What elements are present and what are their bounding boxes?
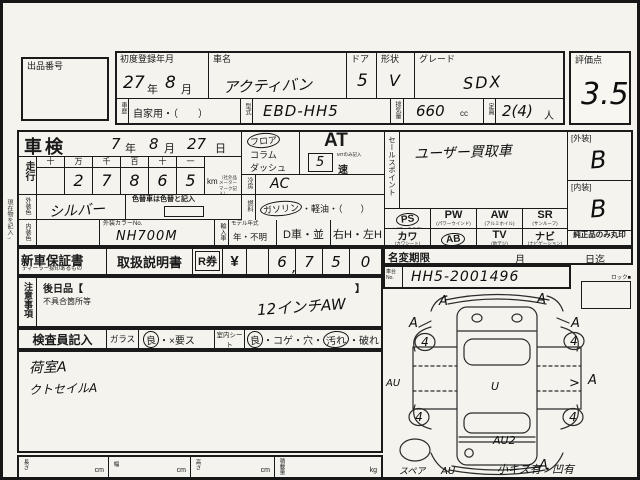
dimensions-row: 長さ cm 幅 cm 高さ cm 積載量 kg (17, 455, 383, 479)
manual-cell: 取扱説明書 (107, 249, 193, 274)
fuel-gas-selected: ガソリン (259, 199, 302, 218)
interior-color-label: 内装色 (24, 223, 30, 241)
fuel-label-cell: 燃料 (242, 195, 256, 220)
sales-value: ユーザー買取車 (414, 140, 512, 163)
equip-tv-cell: TV (地デジ) (477, 229, 523, 249)
vehicle-header-table: 初度登録年月 27 年 8 月 車名 アクティバン ドア 5 形状 V グレード… (115, 51, 565, 125)
price-cell-0 (247, 249, 269, 274)
equip-pw-name: (パワーウインド) (431, 221, 476, 227)
margin-note: 現在物を記入→ (6, 199, 12, 241)
history-label-cell: 車歴 (117, 99, 129, 123)
width-cell: 幅 cm (109, 457, 191, 477)
exterior-grade-label: [外装] (571, 134, 591, 143)
model-label-cell: 型式 (241, 99, 253, 123)
diagram-bottom-note: 小キズ有・凹有 (497, 463, 576, 476)
caution-box: 注意事項 後日品【 】 不具合箇所等 12インチAW (17, 276, 383, 328)
speed-suffix: 速 (338, 161, 348, 174)
shift-options-cell: フロア コラム ダッシュ (242, 132, 300, 174)
lot-number-label: 出品番号 (27, 62, 63, 72)
name-change-row: 名変期限 月 日迄 (383, 247, 633, 265)
vehicle-damage-diagram: 4 4 4 4 A A A A AU A > U AU2 AU A スペア 小キ… (385, 287, 633, 477)
mileage-note: （社外品メーターマーク記入） (219, 175, 241, 194)
fender-right-mark: A (570, 316, 580, 331)
fender-right-tick (557, 318, 569, 323)
history-label: 車歴 (120, 102, 126, 114)
digit-header: 千 (93, 157, 120, 168)
shaken-year-suffix: 年 (125, 140, 136, 156)
length-unit: cm (95, 467, 104, 475)
import-label-cell: 輸入車 (215, 220, 229, 247)
ac-label-cell: 冷房 (242, 175, 256, 194)
d-car-cell: D車・並 (277, 220, 331, 247)
model-year-value: 年・不明 (233, 231, 267, 243)
inspector-note-1: 荷室A (29, 356, 67, 377)
month-suffix: 月 (181, 81, 192, 97)
height-unit: cm (261, 467, 270, 475)
seat-good-selected: 良 (246, 330, 263, 348)
sales-label-cell: セールスポイント (385, 132, 400, 209)
grade-cell: グレード SDX (415, 53, 563, 99)
at-value: AT (324, 132, 348, 152)
equip-kawa-cell: カワ (カワシート) (385, 229, 431, 249)
color-change-cell: 色替車は色替と記入 (125, 195, 242, 219)
mileage-col-3: 百 8 (121, 157, 149, 194)
mileage-col-4: 十 6 (149, 157, 177, 194)
name-change-day: 日迄 (585, 251, 605, 266)
color-model-row: 内装色 外装カラーNo. NH700M 輸入車 モデル年式 年・不明 D車・並 … (19, 220, 385, 247)
digit-header: 十 (149, 157, 176, 168)
wheel-fl-mark: 4 (421, 335, 429, 349)
warranty-cell: 新車保証書 ディーラー捺印あるもの (19, 249, 107, 274)
fuel-row: 燃料 ガソリン・軽油・（ ） (242, 195, 385, 220)
ac-value: AC (270, 176, 289, 192)
equip-aw-code: AW (477, 209, 522, 221)
color-no-cell: 外装カラーNo. NH700M (100, 220, 215, 247)
door-cell: ドア 5 (347, 53, 377, 99)
spare-label: スペア (399, 467, 426, 477)
door-label: ドア (351, 55, 369, 65)
rear-left-mark: AU (440, 466, 456, 477)
history-value: 自家用・（ ） (133, 105, 208, 120)
ac-label: 冷房 (246, 177, 252, 189)
digit-header: 一 (177, 157, 204, 168)
equip-sr-cell: SR (サンルーフ) (523, 209, 568, 229)
later-parts-close: 】 (355, 280, 365, 295)
digit-value: 8 (121, 168, 148, 193)
caution-label: 注意事項 (23, 282, 32, 318)
exterior-color-row: 外装色 シルバー 色替車は色替と記入 (19, 195, 242, 220)
capacity-cell: 2(4) 人 (496, 99, 563, 123)
warranty-sub: ディーラー捺印あるもの (22, 266, 82, 272)
chassis-value: HH5-2001496 (411, 269, 519, 285)
caution-note-value: 12インチAW (256, 293, 346, 320)
chassis-row: 車台No. HH5-2001496 (383, 265, 571, 289)
mileage-col-2: 千 7 (93, 157, 121, 194)
r-ticket-label: R券 (195, 251, 220, 271)
shaken-year: 7 (111, 135, 121, 153)
grade-value: SDX (463, 72, 503, 93)
digit-value: 5 (177, 168, 204, 193)
sales-point-label: セールスポイント (388, 136, 396, 196)
main-band: 車検 7 年 8 月 27 日 走行 十 万 2 千 7 (17, 130, 633, 247)
equip-ps-code: PS (395, 212, 419, 227)
equip-ab-code: AB (441, 232, 466, 247)
equip-ps-cell: PS (パワーステア) (385, 209, 431, 229)
sales-area: ユーザー買取車 (400, 132, 568, 209)
fuel-label: 燃料 (246, 200, 252, 212)
wheel-fr-mark: 4 (570, 334, 578, 348)
left-mirror (472, 314, 482, 322)
shaken-cell: 車検 7 年 8 月 27 日 (19, 132, 242, 157)
later-parts-label: 後日品【 (43, 280, 83, 295)
chassis-label: 車台No. (386, 269, 402, 281)
floor-center-mark: U (491, 380, 499, 393)
mileage-label-cell: 走行 (19, 157, 37, 194)
equip-tv-code: TV (477, 229, 522, 241)
first-registration-cell: 初度登録年月 27 年 8 月 (117, 53, 209, 99)
color-no-value: NH700M (116, 229, 178, 244)
car-name-cell: 車名 アクティバン (209, 53, 347, 99)
payload-label: 積載量 (278, 458, 284, 475)
equip-navi-code: ナビ (523, 229, 567, 241)
length-cell: 長さ cm (19, 457, 109, 477)
history-value-cell: 自家用・（ ） (129, 99, 241, 123)
spare-tire-circle (400, 439, 430, 461)
left-side-panel (413, 347, 457, 409)
name-change-label: 名変期限 (388, 250, 430, 265)
model-label: 型式 (244, 103, 250, 115)
interior-color-value-cell (37, 220, 100, 247)
shift-floor-selected: フロア (246, 132, 280, 149)
equip-aw-name: (アルミホイル) (477, 221, 522, 227)
mileage-unit: km (207, 177, 218, 186)
digit-header: 十 (37, 157, 64, 168)
car-name-label: 車名 (213, 55, 231, 65)
width-label: 幅 (112, 461, 118, 467)
ac-row: 冷房 AC (242, 175, 385, 195)
equip-ab-cell: AB (エアバッグ) (431, 229, 477, 249)
first-registration-month: 8 (165, 73, 176, 93)
price-comma: , (292, 260, 296, 276)
fender-left-tick (419, 321, 431, 327)
length-label: 長さ (22, 459, 28, 470)
model-year-label: モデル年式 (231, 221, 259, 227)
first-registration-year: 27 (123, 73, 145, 93)
glass-options: 良・×要ス (139, 330, 215, 348)
shape-label: 形状 (381, 55, 399, 65)
capacity-label-cell: 定員 (484, 99, 496, 123)
rear-small-circle-annotation (465, 449, 473, 457)
right-mirror (512, 314, 522, 322)
mileage-label: 走行 (23, 161, 33, 181)
handle-cell: 右H・左H (331, 220, 385, 247)
exterior-grade-value: B (589, 145, 607, 174)
car-name-value: アクティバン (223, 73, 313, 97)
front-right-mark: A (536, 292, 546, 307)
glass-good-selected: 良 (142, 330, 159, 348)
seat-options: 良・コゲ・穴・汚れ・破れ (245, 330, 381, 348)
seat-options-end: ・破れ (349, 336, 379, 347)
equip-aw-cell: AW (アルミホイル) (477, 209, 523, 229)
digit-value: 7 (93, 168, 120, 193)
shaken-month: 8 (149, 135, 159, 153)
inspector-row: 検査員記入 ガラス 良・×要ス 室内シート 良・コゲ・穴・汚れ・破れ (17, 328, 383, 350)
displacement-unit: cc (460, 109, 468, 118)
import-label: 輸入車 (219, 223, 225, 241)
interior-color-label-cell: 内装色 (19, 220, 37, 247)
front-right-swoosh (547, 296, 563, 311)
equip-pw-code: PW (431, 209, 476, 221)
shaken-day: 27 (187, 135, 206, 153)
inspector-label: 検査員記入 (19, 330, 107, 348)
yen-symbol: ¥ (223, 249, 247, 274)
windshield (464, 339, 530, 365)
color-change-note: 色替車は色替と記入 (132, 196, 195, 204)
price-cell-2: 7 (296, 249, 323, 274)
at-cell: AT 5 MTのみ記入 速 (300, 132, 384, 174)
score-box: 評価点 3.5 (569, 51, 631, 125)
shape-cell: 形状 V (377, 53, 415, 99)
digit-value: 2 (65, 168, 92, 193)
auction-sheet: 現在物を記入→ 出品番号 初度登録年月 27 年 8 月 車名 アクティバン ド… (0, 0, 640, 480)
height-label: 高さ (194, 459, 200, 470)
name-change-month: 月 (515, 251, 525, 266)
defect-label: 不具合箇所等 (43, 296, 91, 307)
shift-block: フロア コラム ダッシュ AT 5 MTのみ記入 速 (242, 132, 385, 175)
displacement-label: 排気量 (394, 101, 400, 119)
model-code-cell: EBD-HH5 (253, 99, 391, 123)
payload-cell: 積載量 kg (275, 457, 381, 477)
glass-label: ガラス (107, 330, 139, 348)
digit-value (37, 168, 64, 193)
mt-speed-box: 5 (308, 153, 333, 172)
width-unit: cm (177, 467, 186, 475)
fuel-options-rest: ・軽油・（ ） (302, 204, 370, 214)
exterior-color-value: シルバー (49, 199, 106, 220)
shift-dash: ダッシュ (250, 161, 286, 174)
score-value: 3.5 (581, 77, 629, 112)
grade-label: グレード (419, 55, 455, 65)
mileage-unit-cell: km （社外品メーターマーク記入） (205, 157, 242, 194)
digit-header: 万 (65, 157, 92, 168)
front-bumper-inner-line (448, 299, 546, 304)
shaken-month-suffix: 月 (164, 140, 175, 156)
side-right-mark: A (587, 373, 597, 388)
wheel-rl-mark: 4 (415, 410, 423, 424)
exterior-color-label-cell: 外装色 (19, 195, 37, 219)
mileage-col-1: 万 2 (65, 157, 93, 194)
door-value: 5 (357, 71, 368, 91)
exterior-color-label: 外装色 (24, 197, 30, 215)
genuine-note: 純正品のみ丸印 (568, 231, 631, 239)
shaken-day-suffix: 日 (215, 140, 226, 156)
inspector-note-2: クトセイルA (29, 379, 98, 398)
wheel-rr-mark: 4 (569, 410, 577, 424)
rear-center-mark: AU2 (492, 434, 516, 447)
chassis-label-cell: 車台No. (385, 267, 403, 287)
displacement-cell: 660 cc (404, 99, 484, 123)
payload-unit: kg (370, 467, 377, 475)
fender-left-mark: A (408, 316, 418, 331)
shift-column: コラム (250, 148, 277, 161)
mileage-row: 走行 十 万 2 千 7 百 8 十 6 一 (19, 157, 242, 195)
digit-header: 百 (121, 157, 148, 168)
interior-grade-cell: [内装] B (568, 181, 631, 231)
lot-number-box: 出品番号 (21, 57, 109, 121)
color-change-box (164, 206, 204, 217)
interior-grade-value: B (589, 194, 607, 223)
inspector-notes-box: 荷室A クトセイルA (17, 350, 383, 453)
genuine-note-cell: 純正品のみ丸印 (568, 231, 631, 245)
displacement-label-cell: 排気量 (391, 99, 404, 123)
equip-navi-cell: ナビ (ナビゲーション) (523, 229, 568, 249)
height-cell: 高さ cm (191, 457, 275, 477)
year-suffix: 年 (147, 81, 158, 97)
model-code-value: EBD-HH5 (263, 102, 339, 120)
seat-label: 室内シート (215, 330, 245, 348)
side-right-tick-mark: > (569, 376, 580, 391)
interior-grade-label: [内装] (571, 183, 591, 192)
equip-sr-code: SR (523, 209, 567, 221)
side-left-mark: AU (385, 378, 401, 389)
price-cell-3: 5 (323, 249, 350, 274)
capacity-label: 定員 (487, 103, 493, 115)
front-left-mark: A (438, 294, 448, 309)
mt-speed-value: 5 (316, 155, 324, 170)
exterior-grade-cell: [外装] B (568, 132, 631, 181)
r-ticket-cell: R券 (193, 249, 223, 274)
displacement-value: 660 (416, 102, 445, 120)
mt-note: MTのみ記入 (337, 152, 369, 157)
equip-sr-name: (サンルーフ) (523, 221, 567, 227)
color-no-label: 外装カラーNo. (103, 221, 142, 228)
price-cell-4: 0 (350, 249, 381, 274)
shaken-label: 車検 (24, 133, 66, 157)
first-registration-label: 初度登録年月 (120, 55, 174, 65)
capacity-unit: 人 (544, 107, 554, 122)
mileage-col-5: 一 5 (177, 157, 205, 194)
seat-dirty-selected: 汚れ (322, 330, 349, 348)
equip-pw-cell: PW (パワーウインド) (431, 209, 477, 229)
capacity-value: 2(4) (502, 102, 533, 120)
equip-kawa-code: カワ (385, 229, 430, 241)
mileage-col-0: 十 (37, 157, 65, 194)
caution-label-cell: 注意事項 (19, 278, 37, 326)
rear-window (464, 413, 530, 433)
model-year-cell: モデル年式 年・不明 (229, 220, 277, 247)
glass-options-rest: ・×要ス (159, 336, 195, 347)
seat-options-mid: ・コゲ・穴・ (263, 336, 323, 347)
docs-row: 新車保証書 ディーラー捺印あるもの 取扱説明書 R券 ¥ 6 7 5 0 , (17, 247, 383, 276)
digit-value: 6 (149, 168, 176, 193)
shape-value: V (389, 71, 400, 90)
score-label: 評価点 (575, 56, 602, 66)
